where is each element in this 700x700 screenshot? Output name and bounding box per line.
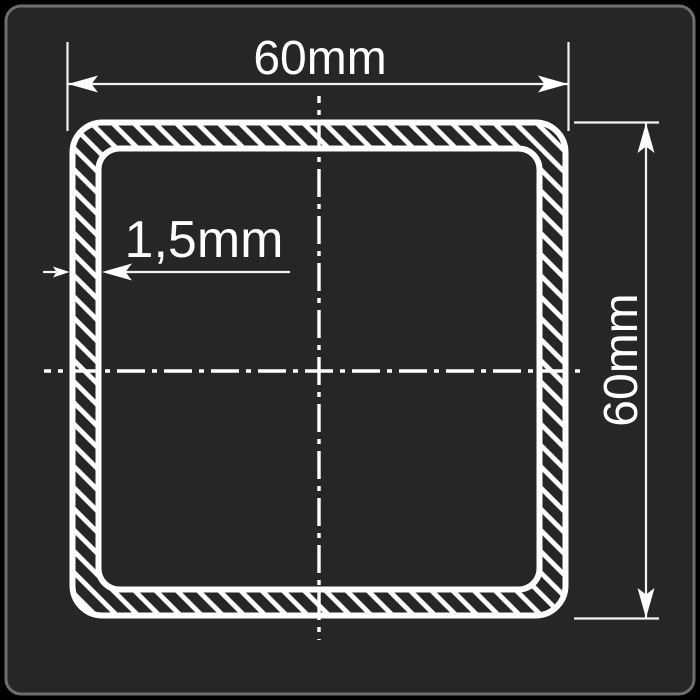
height-dimension-label: 60mm (595, 293, 648, 426)
square-tube-section-drawing: 60mm 60mm 1,5mm (0, 0, 700, 700)
width-dimension-label: 60mm (253, 32, 386, 85)
thickness-dimension-label: 1,5mm (125, 211, 284, 269)
technical-drawing-canvas: 60mm 60mm 1,5mm (0, 0, 700, 700)
